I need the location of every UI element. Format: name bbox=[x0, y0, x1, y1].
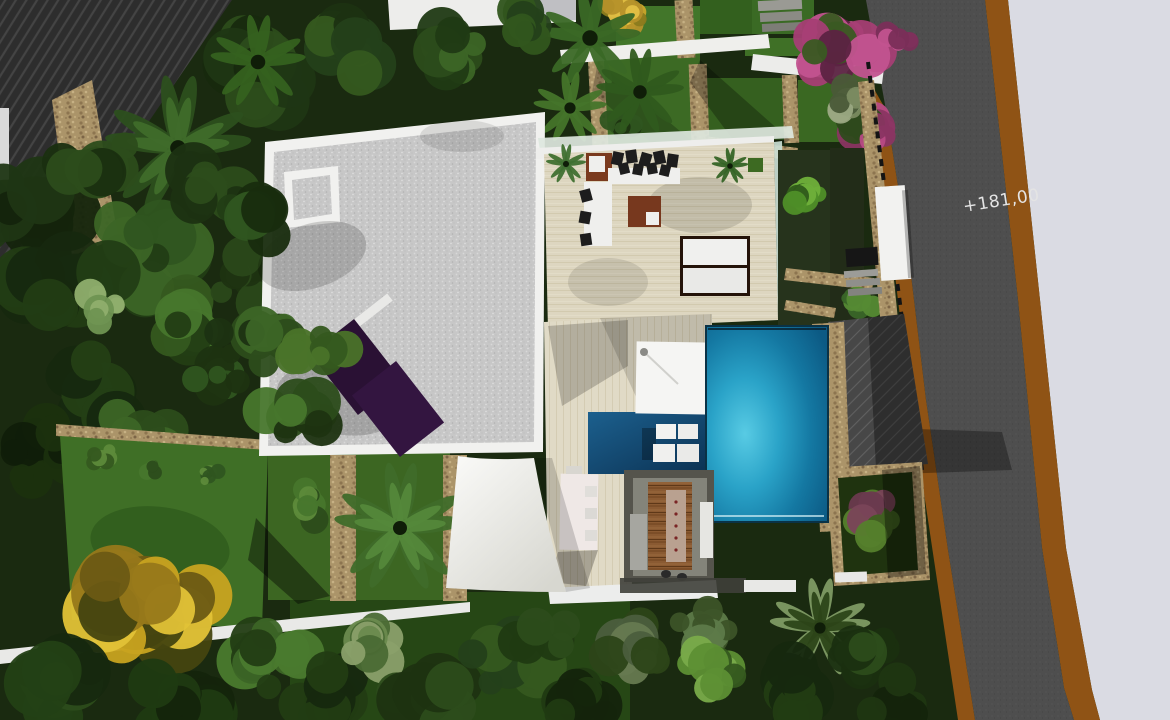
chair bbox=[566, 466, 582, 474]
tree-cluster bbox=[849, 632, 879, 662]
tree-cluster bbox=[165, 311, 192, 338]
side-table-top bbox=[589, 156, 605, 172]
decor-dot bbox=[674, 548, 677, 551]
flowering-shrub bbox=[855, 520, 888, 553]
decor-dot bbox=[674, 524, 677, 527]
decor-dot bbox=[674, 536, 677, 539]
entry-gate bbox=[845, 247, 878, 267]
tree-cluster bbox=[257, 675, 282, 700]
tree-cluster bbox=[305, 410, 333, 438]
kitchen-bench bbox=[700, 502, 713, 558]
tree-cluster bbox=[589, 636, 630, 677]
tree-cluster bbox=[241, 186, 288, 233]
decor-dot bbox=[674, 512, 677, 515]
chair bbox=[666, 153, 679, 167]
bowl bbox=[661, 570, 671, 578]
tree-cluster bbox=[337, 50, 382, 95]
kitchen-edge bbox=[620, 578, 746, 593]
tree-cluster bbox=[88, 308, 105, 325]
roof-shadow bbox=[420, 120, 504, 152]
tree-cluster bbox=[64, 149, 102, 187]
parasol-pole bbox=[640, 348, 648, 356]
shrub bbox=[146, 460, 158, 472]
garden-step bbox=[835, 571, 867, 582]
tree-cluster bbox=[458, 639, 487, 668]
chair bbox=[579, 211, 592, 225]
chair bbox=[580, 233, 593, 246]
tree-cluster bbox=[239, 629, 276, 666]
chair bbox=[625, 149, 638, 163]
bougainvillea bbox=[888, 28, 909, 49]
tree-cluster bbox=[341, 641, 365, 665]
pool-lounger bbox=[678, 424, 698, 439]
tree-cluster bbox=[306, 651, 348, 693]
fire-table-inset bbox=[646, 212, 659, 225]
chair bbox=[632, 163, 644, 176]
tree-cluster bbox=[425, 661, 473, 709]
tree-cluster bbox=[185, 172, 217, 204]
roof-skylight bbox=[292, 175, 332, 220]
pool-lounger bbox=[677, 444, 699, 462]
tree-cluster bbox=[22, 641, 82, 701]
tree-cluster bbox=[124, 215, 159, 250]
tree-cluster bbox=[631, 637, 668, 674]
palm-tree-center bbox=[393, 521, 407, 535]
chair bbox=[585, 530, 597, 541]
potted-palm-center bbox=[563, 161, 569, 167]
tree-cluster bbox=[9, 464, 33, 488]
decor-dot bbox=[674, 500, 677, 503]
palm-tree-center bbox=[251, 55, 266, 70]
bougainvillea bbox=[802, 39, 827, 64]
shrub bbox=[201, 477, 209, 485]
tree-cluster bbox=[182, 366, 208, 392]
shrub bbox=[87, 447, 101, 461]
chair bbox=[646, 162, 658, 175]
deck-shadow bbox=[648, 177, 752, 233]
tree-cluster bbox=[765, 641, 817, 693]
shrub bbox=[783, 191, 807, 215]
potted-palm-center bbox=[727, 163, 733, 169]
bed-shadow bbox=[882, 466, 926, 578]
pool-lounger bbox=[656, 424, 676, 439]
palm-tree-center bbox=[564, 102, 575, 113]
shrub bbox=[210, 464, 225, 479]
tree-cluster bbox=[502, 15, 534, 47]
kitchen-cabinet bbox=[630, 514, 647, 570]
palm-tree-center bbox=[633, 85, 646, 98]
tree-cluster bbox=[274, 394, 307, 427]
tree-cluster bbox=[273, 631, 309, 667]
tree-cluster bbox=[700, 668, 733, 701]
tree-cluster bbox=[275, 338, 311, 374]
tree-cluster bbox=[517, 608, 555, 646]
tree-cluster bbox=[435, 19, 470, 54]
tree-cluster bbox=[23, 279, 75, 331]
tree-cluster bbox=[245, 314, 283, 352]
main-pool bbox=[706, 326, 828, 522]
tree-cluster bbox=[128, 658, 178, 708]
yellow-tree bbox=[80, 552, 130, 602]
tree-cluster bbox=[311, 347, 330, 366]
tree-cluster bbox=[71, 340, 111, 380]
terrace-wall bbox=[744, 580, 796, 592]
aerial-villa-render: +181,00 bbox=[0, 0, 1170, 720]
chair bbox=[585, 508, 597, 519]
palm-tree-center bbox=[814, 622, 825, 633]
render-canvas: +181,00 bbox=[0, 0, 1170, 720]
tree-cluster bbox=[204, 318, 233, 347]
planter-box bbox=[748, 158, 763, 172]
lawn-terrace bbox=[700, 0, 752, 34]
sage-shrub bbox=[829, 93, 849, 113]
daybed-cushion bbox=[683, 268, 747, 293]
pool-lounger bbox=[653, 444, 675, 462]
daybed-cushion bbox=[683, 239, 747, 265]
tree-cluster bbox=[884, 666, 915, 697]
tree-cluster bbox=[226, 369, 250, 393]
tree-cluster bbox=[1, 439, 28, 466]
tree-cluster bbox=[209, 366, 227, 384]
deck-shadow bbox=[568, 258, 648, 306]
scene-layer: +181,00 bbox=[0, 0, 1170, 720]
tree-cluster bbox=[670, 612, 690, 632]
chair bbox=[585, 486, 597, 497]
shrub bbox=[297, 495, 318, 516]
palm-tree-center bbox=[582, 30, 597, 45]
